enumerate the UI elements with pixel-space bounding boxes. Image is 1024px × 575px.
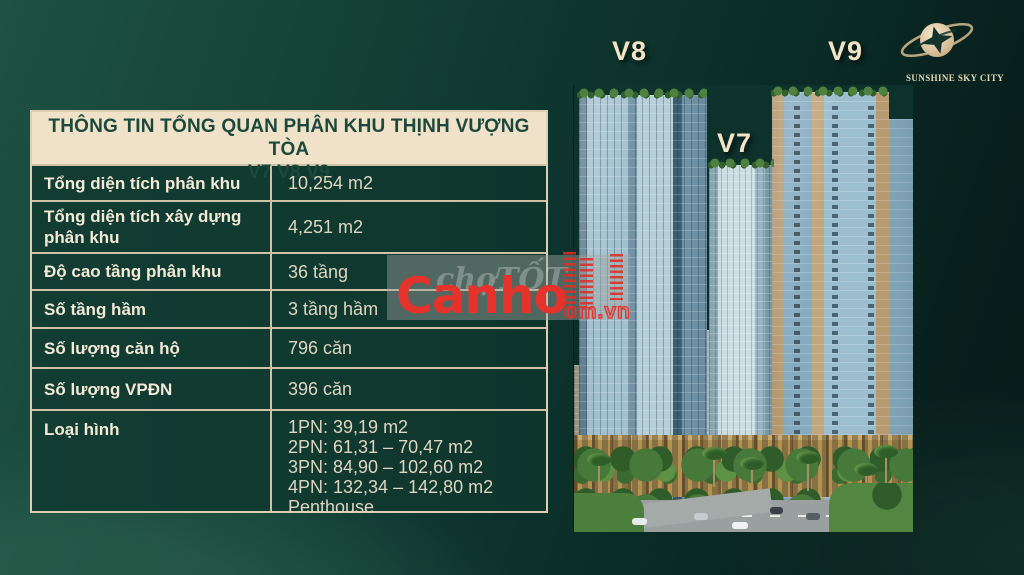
car — [694, 513, 708, 520]
row-value: 1PN: 39,19 m2 2PN: 61,31 – 70,47 m2 3PN:… — [272, 411, 546, 511]
row-label: Độ cao tầng phân khu — [32, 254, 272, 289]
unit-type-line: Penthouse — [288, 497, 540, 517]
row-label: Loại hình — [32, 411, 272, 511]
car — [770, 507, 783, 514]
row-label: Số lượng VPĐN — [32, 369, 272, 409]
table-row: Tổng diện tích phân khu 10,254 m2 — [32, 164, 546, 200]
page-background: { "table": { "title_line1": "THÔNG TIN T… — [0, 0, 1024, 575]
table-title: THÔNG TIN TỔNG QUAN PHÂN KHU THỊNH VƯỢNG… — [32, 112, 546, 164]
logo-wordmark: SUNSHINE SKY CITY — [885, 73, 1024, 83]
rooftop-greenery-v9 — [771, 85, 891, 98]
watermark-cjk-marks — [563, 252, 576, 308]
row-value: 796 căn — [272, 329, 546, 367]
rooftop-greenery-v8 — [577, 87, 707, 100]
palm-tree — [587, 453, 611, 493]
watermark-canho: Canho — [396, 271, 567, 321]
table-title-line1: THÔNG TIN TỔNG QUAN PHÂN KHU THỊNH VƯỢNG… — [32, 115, 546, 161]
unit-type-line: 2PN: 61,31 – 70,47 m2 — [288, 437, 540, 457]
car — [732, 522, 748, 529]
watermark-cjk-marks — [580, 258, 593, 308]
table-row: Loại hình 1PN: 39,19 m2 2PN: 61,31 – 70,… — [32, 409, 546, 511]
row-value: 10,254 m2 — [272, 166, 546, 200]
lawn — [574, 493, 644, 532]
lawn — [829, 483, 913, 532]
sunshine-sky-city-logo: SUNSHINE SKY CITY — [885, 14, 1024, 83]
table-row: Số lượng căn hộ 796 căn — [32, 327, 546, 367]
table-row: Tổng diện tích xây dựng phân khu 4,251 m… — [32, 200, 546, 252]
row-value: 396 căn — [272, 369, 546, 409]
tower-label-v9: V9 — [828, 38, 863, 65]
watermark-cjk-marks — [610, 254, 623, 300]
car — [806, 513, 820, 520]
roof-step — [889, 92, 913, 119]
tower-label-v8: V8 — [612, 38, 647, 65]
unit-type-line: 1PN: 39,19 m2 — [288, 417, 540, 437]
row-label: Tổng diện tích phân khu — [32, 166, 272, 200]
tower-label-v7: V7 — [717, 130, 752, 157]
palm-tree — [796, 451, 820, 491]
table-row: Số lượng VPĐN 396 căn — [32, 367, 546, 409]
row-label: Số tầng hầm — [32, 291, 272, 327]
palm-tree — [702, 447, 726, 487]
planet-star-icon — [885, 14, 1024, 66]
unit-type-line: 3PN: 84,90 – 102,60 m2 — [288, 457, 540, 477]
rooftop-greenery-v7 — [708, 157, 774, 170]
car — [632, 518, 647, 525]
unit-type-line: 4PN: 132,34 – 142,80 m2 — [288, 477, 540, 497]
row-label: Tổng diện tích xây dựng phân khu — [32, 202, 272, 252]
row-label: Số lượng căn hộ — [32, 329, 272, 367]
row-value: 4,251 m2 — [272, 202, 546, 252]
